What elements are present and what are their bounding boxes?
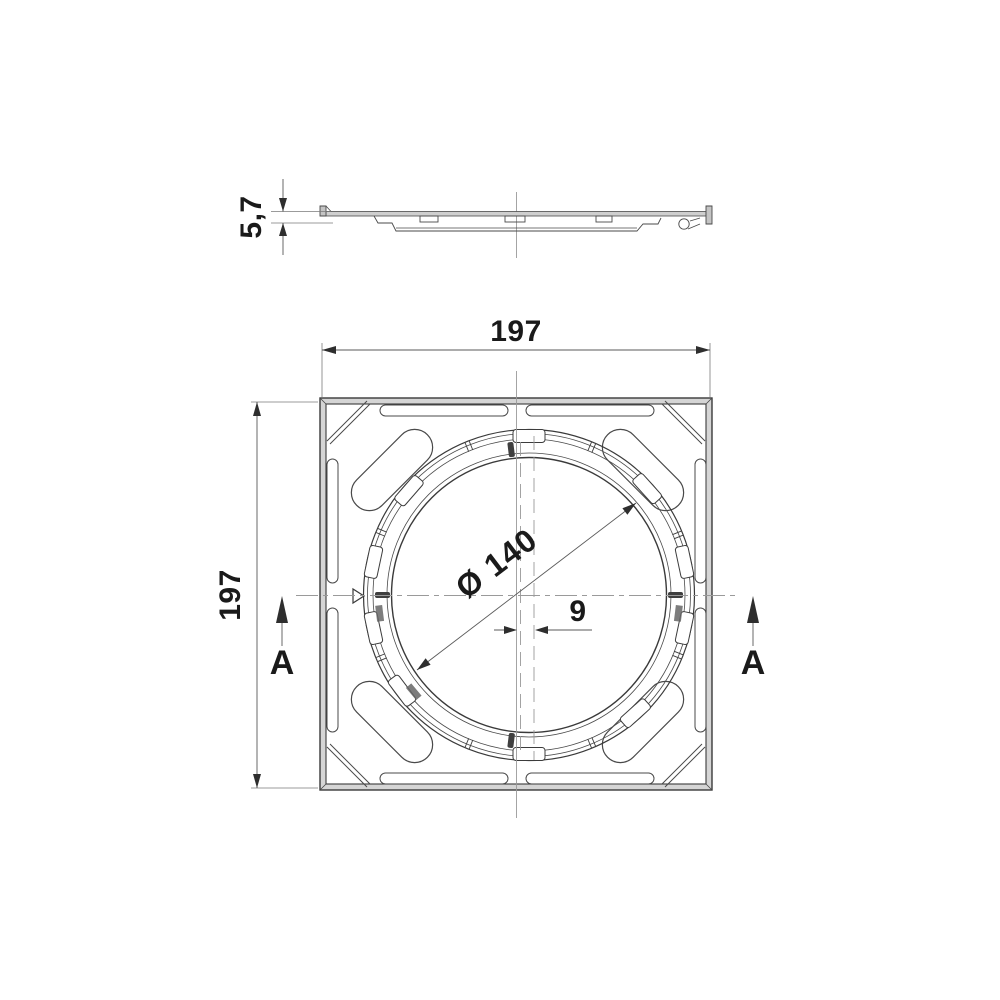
dimension-arrow bbox=[279, 198, 287, 212]
technical-drawing: 5,7 bbox=[0, 0, 1000, 1000]
dimension-arrow bbox=[322, 346, 336, 354]
profile-hook-links bbox=[688, 218, 700, 229]
profile-rib-1 bbox=[420, 216, 438, 222]
dimension-arrow bbox=[253, 402, 261, 416]
profile-hook bbox=[679, 219, 689, 229]
section-arrow-up-icon bbox=[747, 596, 759, 623]
section-label-left: A bbox=[270, 644, 295, 682]
section-marker-left: A bbox=[270, 596, 295, 682]
profile-body bbox=[326, 212, 706, 217]
profile-left-lip-line bbox=[326, 206, 331, 212]
ring-pin bbox=[668, 592, 683, 598]
ring-pin bbox=[375, 592, 390, 598]
profile-left-lip bbox=[320, 206, 326, 216]
profile-right-lip bbox=[706, 206, 712, 224]
ring-tab-block bbox=[513, 430, 545, 443]
profile-view bbox=[320, 192, 712, 258]
dimension-arrow bbox=[253, 774, 261, 788]
profile-tray bbox=[374, 216, 661, 231]
ring-tab-block bbox=[513, 748, 545, 761]
dimension-thickness: 5,7 bbox=[235, 179, 333, 255]
profile-rib-2 bbox=[505, 216, 525, 222]
dimension-arrow bbox=[696, 346, 710, 354]
drawing-page: 5,7 bbox=[0, 0, 1000, 1000]
section-marker-right: A bbox=[741, 596, 766, 682]
height-dimension-label: 197 bbox=[214, 569, 247, 621]
width-dimension-label: 197 bbox=[490, 315, 542, 348]
dimension-arrow bbox=[279, 223, 287, 236]
offset-dimension-label: 9 bbox=[569, 595, 586, 628]
dimension-width: 197 bbox=[322, 315, 710, 397]
section-arrow-up-icon bbox=[276, 596, 288, 623]
profile-rib-3 bbox=[596, 216, 612, 222]
thickness-dimension-label: 5,7 bbox=[235, 195, 268, 238]
dimension-height: 197 bbox=[214, 402, 318, 788]
section-label-right: A bbox=[741, 644, 766, 682]
